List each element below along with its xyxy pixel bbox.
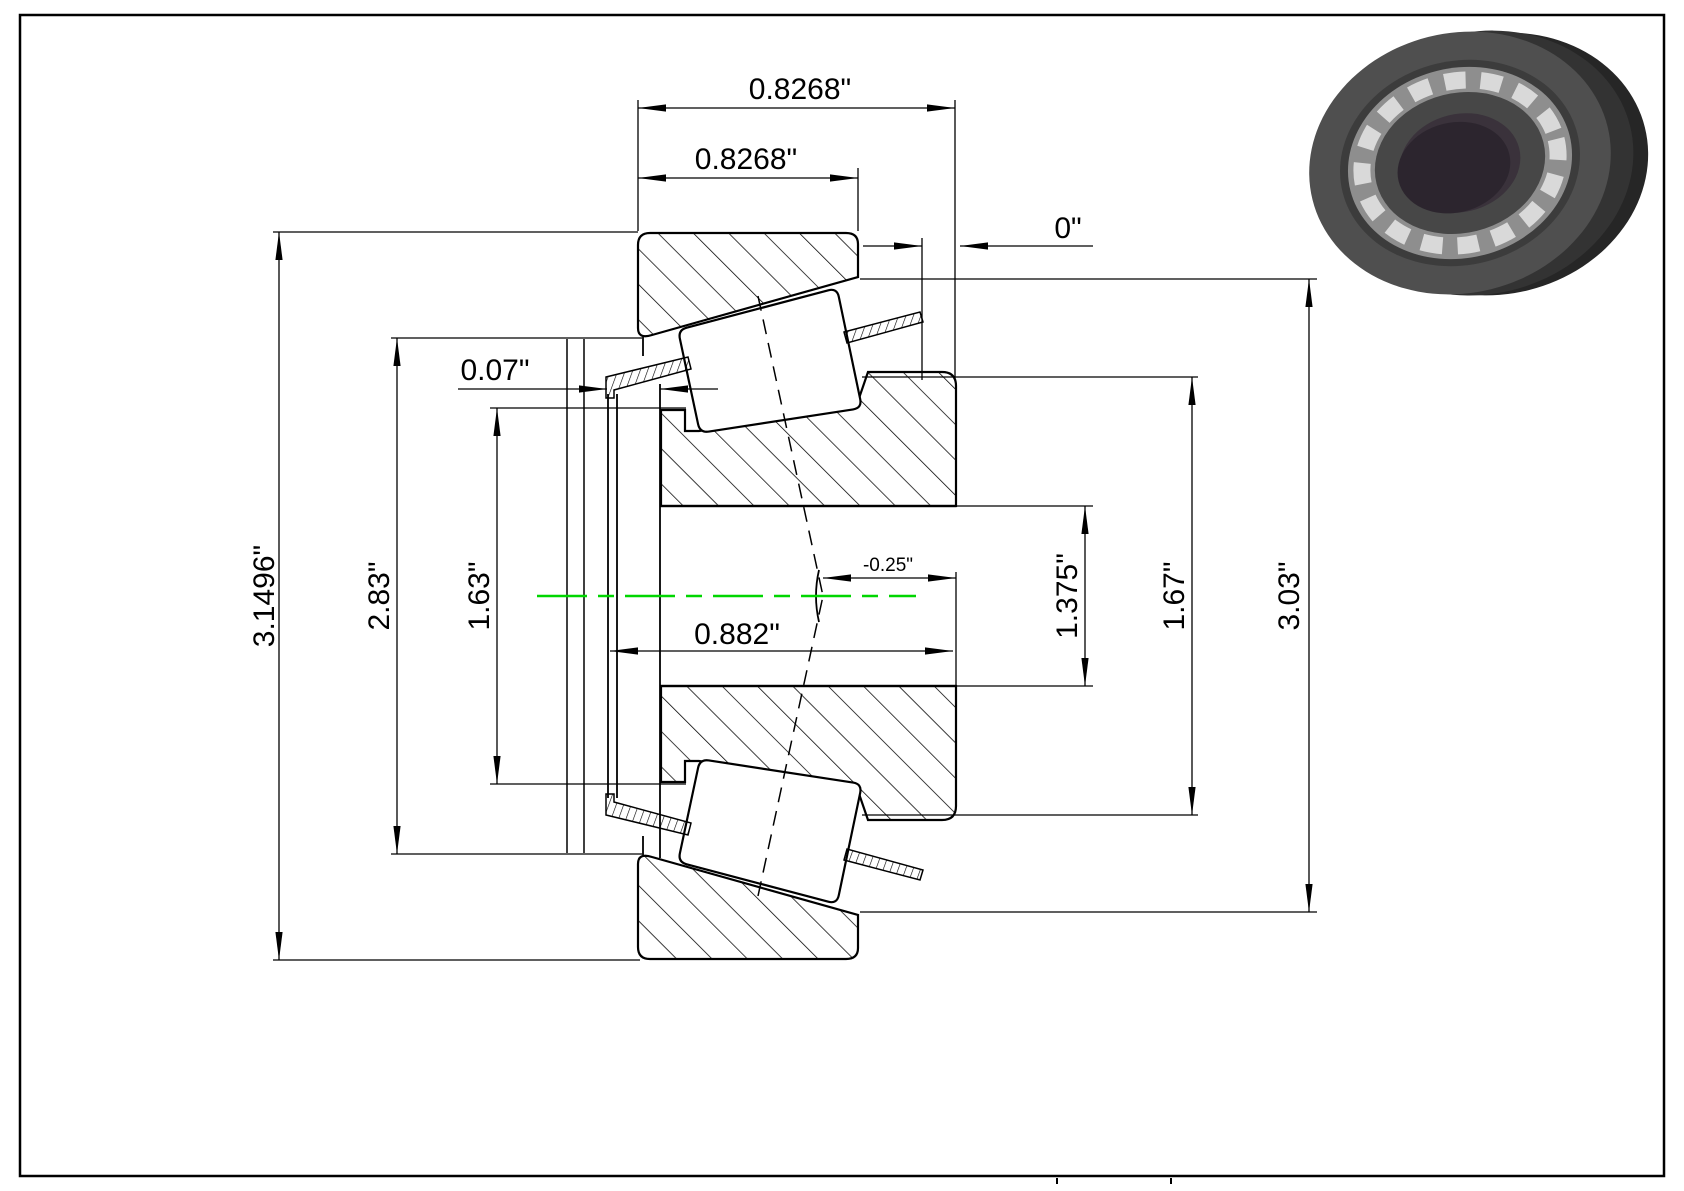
cage-strip-top-right	[844, 312, 923, 343]
bearing-3d-render	[1281, 0, 1676, 336]
dim-race-large-label: 3.03"	[1273, 561, 1306, 630]
border-tick-marks	[1057, 1178, 1171, 1184]
dim-cage-clearance-label: 0.07"	[460, 354, 529, 387]
cage-lip-top-left	[606, 357, 691, 398]
dim-standout-label: 0"	[1054, 212, 1081, 245]
dim-overall-width-label: 0.8268"	[749, 73, 851, 106]
dim-bore-label: 1.375"	[1051, 553, 1084, 639]
dim-rib-od-label: 1.67"	[1158, 561, 1191, 630]
drawing-page: 0.8268" 0.8268" 0" 0.07" 3.1496" 2.83" 1…	[0, 0, 1684, 1191]
cage-lip-bottom-left	[606, 794, 691, 835]
dim-cup-od-label: 3.1496"	[248, 545, 281, 647]
dim-cone-width-label: 0.882"	[694, 618, 780, 651]
dim-race-small-label: 2.83"	[363, 561, 396, 630]
dim-cage-small-label: 1.63"	[463, 561, 496, 630]
dim-load-center-label: -0.25"	[863, 555, 913, 576]
technical-drawing: 0.8268" 0.8268" 0" 0.07" 3.1496" 2.83" 1…	[0, 0, 1684, 1191]
dim-cup-width-label: 0.8268"	[695, 143, 797, 176]
cage-strip-bottom-right	[844, 849, 923, 880]
